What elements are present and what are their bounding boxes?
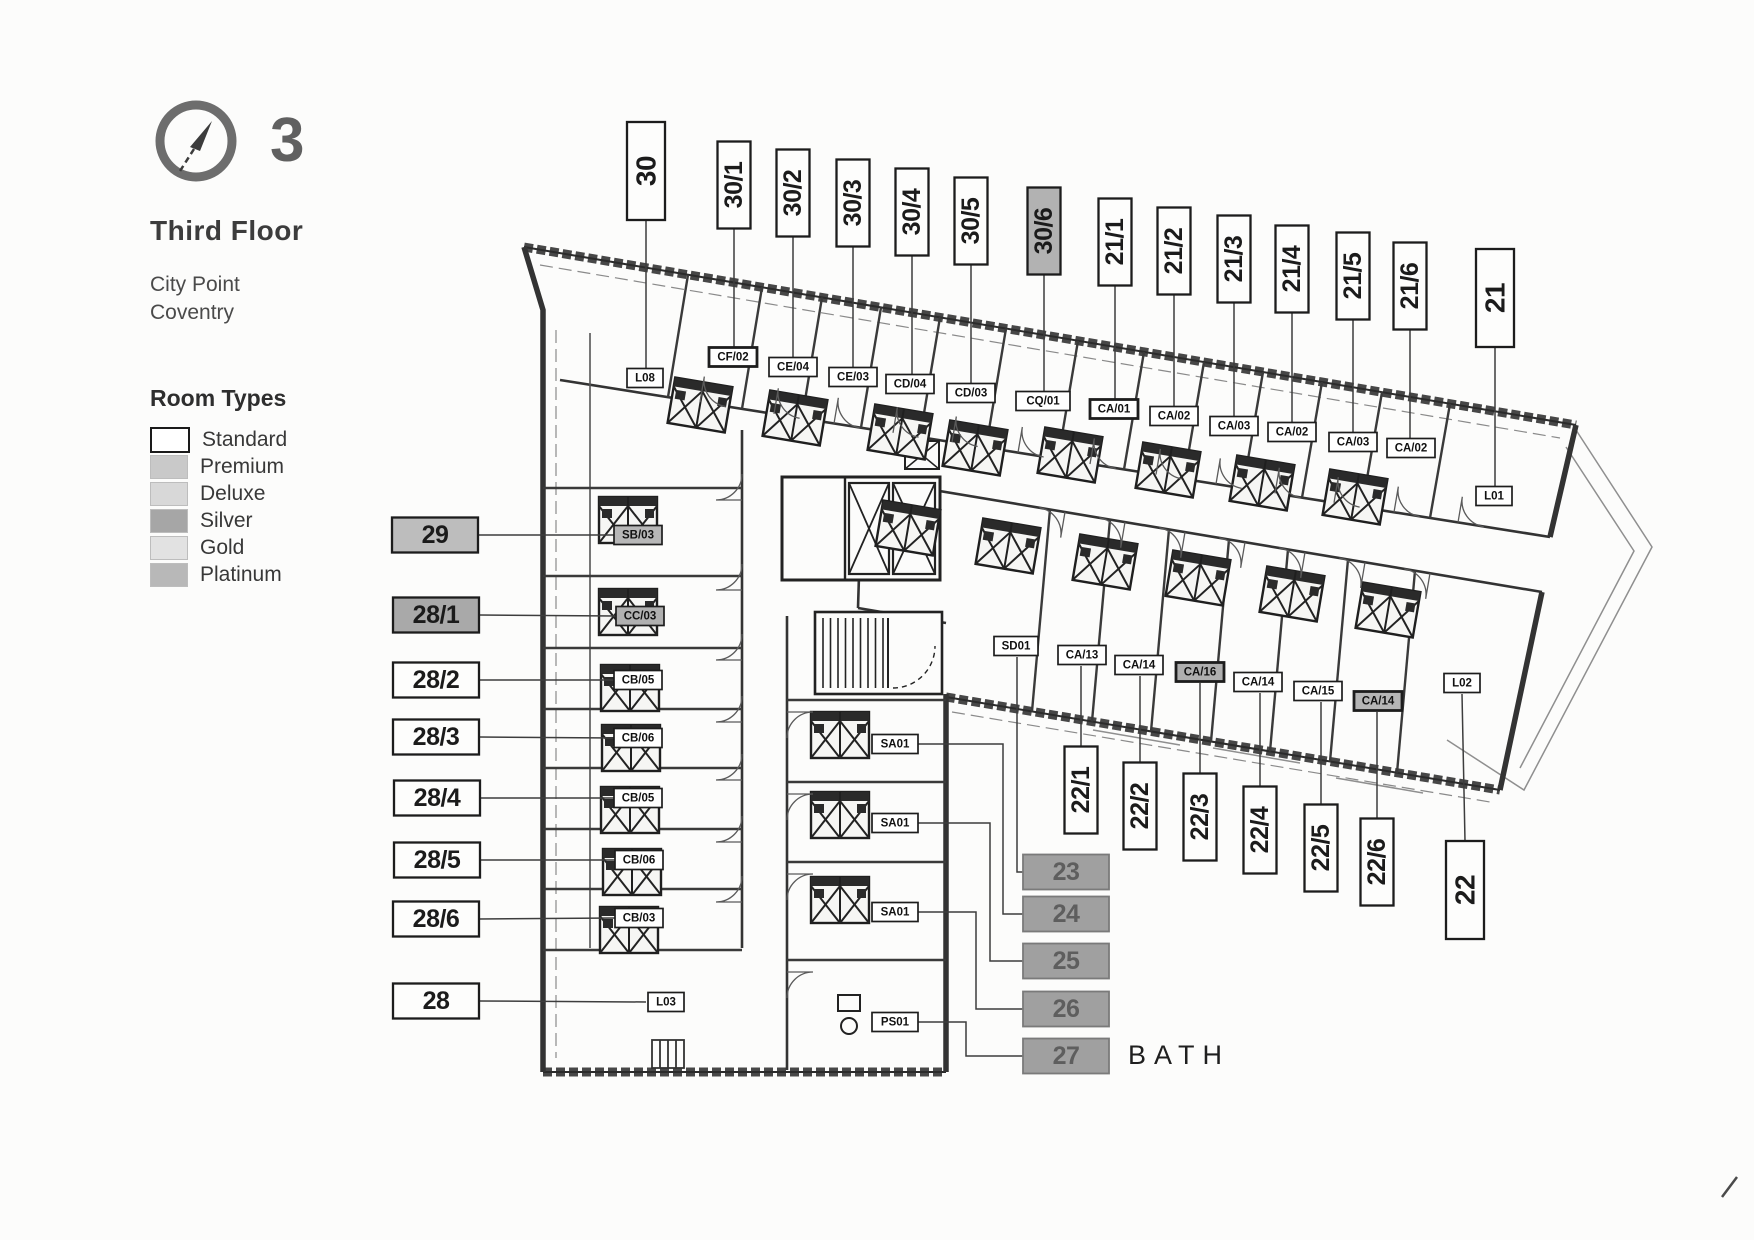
room-code-CA-13: CA/13 xyxy=(1058,646,1106,665)
svg-text:30/6: 30/6 xyxy=(1030,208,1058,255)
bed-icon xyxy=(811,712,869,758)
room-code-CA-02: CA/02 xyxy=(1387,439,1435,458)
room-code-CA-15: CA/15 xyxy=(1294,682,1342,701)
svg-text:CB/06: CB/06 xyxy=(622,733,655,745)
svg-text:28: 28 xyxy=(423,987,450,1015)
bed-icon xyxy=(811,792,869,838)
svg-text:26: 26 xyxy=(1053,995,1080,1023)
bath-label: BATH xyxy=(1128,1040,1230,1070)
svg-text:L01: L01 xyxy=(1484,491,1504,503)
svg-text:23: 23 xyxy=(1053,858,1080,886)
svg-text:CB/05: CB/05 xyxy=(622,793,655,805)
svg-text:CQ/01: CQ/01 xyxy=(1026,396,1060,408)
callout-30-3: 30/3 xyxy=(837,160,870,247)
room-code-CA-16: CA/16 xyxy=(1176,663,1224,682)
room-code-CE-04: CE/04 xyxy=(769,358,817,377)
room-code-PS01: PS01 xyxy=(872,1013,918,1032)
svg-text:L08: L08 xyxy=(635,373,655,385)
callout-30-6: 30/6 xyxy=(1028,188,1061,275)
room-code-L03: L03 xyxy=(648,993,684,1012)
room-code-CA-03: CA/03 xyxy=(1329,433,1377,452)
bed-icon xyxy=(943,420,1008,475)
svg-text:21/2: 21/2 xyxy=(1160,228,1188,275)
door-arc xyxy=(787,972,813,998)
room-code-L01: L01 xyxy=(1476,487,1512,506)
svg-text:30/3: 30/3 xyxy=(839,180,867,227)
svg-text:L02: L02 xyxy=(1452,678,1472,690)
room-code-L08: L08 xyxy=(627,369,663,388)
room-code-SA01: SA01 xyxy=(872,814,918,833)
door-arc xyxy=(787,874,813,900)
bed-icon xyxy=(1136,442,1201,497)
service-box xyxy=(652,1040,684,1068)
room-code-CB-05: CB/05 xyxy=(614,671,662,690)
svg-text:28/5: 28/5 xyxy=(414,846,461,874)
svg-text:CB/06: CB/06 xyxy=(623,855,656,867)
svg-text:SA01: SA01 xyxy=(881,907,910,919)
furniture-layer xyxy=(599,377,1420,1034)
room-code-CQ-01: CQ/01 xyxy=(1016,392,1070,411)
room-code-CA-02: CA/02 xyxy=(1150,407,1198,426)
callout-21-1: 21/1 xyxy=(1099,199,1132,286)
room-code-CB-03: CB/03 xyxy=(615,909,663,928)
room-code-CB-06: CB/06 xyxy=(614,729,662,748)
svg-text:22/4: 22/4 xyxy=(1246,806,1274,853)
bed-icon xyxy=(668,377,733,432)
bed-icon xyxy=(1323,469,1388,524)
callout-30-4: 30/4 xyxy=(896,169,929,256)
callout-23: 23 xyxy=(1023,855,1109,890)
svg-text:21: 21 xyxy=(1480,283,1511,313)
callout-21-2: 21/2 xyxy=(1158,208,1191,295)
callout-21: 21 xyxy=(1476,249,1514,347)
bed-icon xyxy=(763,390,828,445)
svg-text:22: 22 xyxy=(1450,875,1481,905)
callout-29: 29 xyxy=(392,518,478,553)
svg-text:CA/14: CA/14 xyxy=(1242,677,1275,689)
svg-text:CA/03: CA/03 xyxy=(1337,437,1370,449)
room-code-SA01: SA01 xyxy=(872,735,918,754)
callout-22-1: 22/1 xyxy=(1065,747,1098,834)
callout-26: 26 xyxy=(1023,992,1109,1027)
room-code-CC-03: CC/03 xyxy=(616,607,664,626)
svg-text:SA01: SA01 xyxy=(881,818,910,830)
callout-28-4: 28/4 xyxy=(394,781,480,816)
svg-text:22/1: 22/1 xyxy=(1067,766,1095,813)
bed-icon xyxy=(1038,427,1103,482)
svg-text:28/3: 28/3 xyxy=(413,723,460,751)
svg-text:SD01: SD01 xyxy=(1002,641,1031,653)
callout-30-5: 30/5 xyxy=(955,178,988,265)
door-arc xyxy=(787,794,813,820)
svg-text:28/6: 28/6 xyxy=(413,905,460,933)
svg-text:CA/16: CA/16 xyxy=(1184,667,1217,679)
svg-text:CA/03: CA/03 xyxy=(1218,421,1251,433)
bed-icon xyxy=(876,500,941,555)
room-code-CB-05: CB/05 xyxy=(614,789,662,808)
callout-21-4: 21/4 xyxy=(1276,226,1309,313)
room-code-SA01: SA01 xyxy=(872,903,918,922)
svg-text:28/1: 28/1 xyxy=(413,601,460,629)
room-code-CA-14: CA/14 xyxy=(1115,656,1163,675)
svg-text:CA/02: CA/02 xyxy=(1276,427,1309,439)
callout-22-6: 22/6 xyxy=(1361,819,1394,906)
bed-icon xyxy=(1073,534,1138,589)
svg-text:L03: L03 xyxy=(656,997,676,1009)
bed-icon xyxy=(868,404,933,459)
room-code-CD-04: CD/04 xyxy=(886,375,934,394)
bed-icon xyxy=(976,518,1041,573)
svg-text:28/4: 28/4 xyxy=(414,784,461,812)
door-arc xyxy=(787,712,813,738)
svg-text:CA/15: CA/15 xyxy=(1302,686,1335,698)
bed-icon xyxy=(1260,566,1325,621)
svg-text:27: 27 xyxy=(1053,1042,1080,1070)
svg-text:30/1: 30/1 xyxy=(720,161,748,208)
room-code-SD01: SD01 xyxy=(994,637,1038,656)
svg-text:30: 30 xyxy=(631,156,662,186)
callout-21-5: 21/5 xyxy=(1337,233,1370,320)
room-code-L02: L02 xyxy=(1444,674,1480,693)
svg-text:SB/03: SB/03 xyxy=(622,530,654,542)
pen-mark xyxy=(1722,1177,1737,1197)
svg-text:22/3: 22/3 xyxy=(1186,794,1214,841)
svg-text:21/3: 21/3 xyxy=(1220,236,1248,283)
svg-text:CB/05: CB/05 xyxy=(622,675,655,687)
svg-text:24: 24 xyxy=(1053,900,1080,928)
room-code-CA-14: CA/14 xyxy=(1234,673,1282,692)
room-code-CF-02: CF/02 xyxy=(709,348,757,367)
svg-text:SA01: SA01 xyxy=(881,739,910,751)
callout-28-6: 28/6 xyxy=(393,902,479,937)
callout-28-5: 28/5 xyxy=(394,843,480,878)
room-code-CA-02: CA/02 xyxy=(1268,423,1316,442)
callout-21-3: 21/3 xyxy=(1218,216,1251,303)
svg-text:25: 25 xyxy=(1053,947,1080,975)
svg-text:CD/04: CD/04 xyxy=(894,379,927,391)
room-code-CD-03: CD/03 xyxy=(947,384,995,403)
callout-30-1: 30/1 xyxy=(718,142,751,229)
callout-28-2: 28/2 xyxy=(393,663,479,698)
bed-icon xyxy=(1230,455,1295,510)
callout-28: 28 xyxy=(393,984,479,1019)
svg-text:21/4: 21/4 xyxy=(1278,245,1306,292)
svg-text:CD/03: CD/03 xyxy=(955,388,988,400)
callout-22: 22 xyxy=(1446,841,1484,939)
svg-text:PS01: PS01 xyxy=(881,1017,910,1029)
callout-24: 24 xyxy=(1023,897,1109,932)
svg-text:CC/03: CC/03 xyxy=(624,611,657,623)
callout-27: 27 xyxy=(1023,1039,1109,1074)
room-code-CA-03: CA/03 xyxy=(1210,417,1258,436)
floorplan-page: { "header": { "floor_number": "3", "floo… xyxy=(0,0,1754,1240)
bed-icon xyxy=(1166,550,1231,605)
svg-text:CA/01: CA/01 xyxy=(1098,404,1131,416)
floor-plan-drawing: L08CF/02CE/04CE/03CD/04CD/03CQ/01CA/01CA… xyxy=(0,0,1754,1240)
svg-text:30/5: 30/5 xyxy=(957,197,985,244)
svg-text:CA/14: CA/14 xyxy=(1123,660,1156,672)
svg-text:21/6: 21/6 xyxy=(1396,263,1424,310)
callout-28-3: 28/3 xyxy=(393,720,479,755)
svg-text:CA/14: CA/14 xyxy=(1362,696,1395,708)
svg-text:22/6: 22/6 xyxy=(1363,839,1391,886)
callout-25: 25 xyxy=(1023,944,1109,979)
svg-text:30/4: 30/4 xyxy=(898,188,926,235)
svg-text:CA/13: CA/13 xyxy=(1066,650,1099,662)
svg-text:CF/02: CF/02 xyxy=(717,352,748,364)
room-code-CA-14: CA/14 xyxy=(1354,692,1402,711)
room-code-SB-03: SB/03 xyxy=(614,526,662,545)
callout-28-1: 28/1 xyxy=(393,598,479,633)
svg-text:22/2: 22/2 xyxy=(1126,783,1154,830)
bed-icon xyxy=(811,877,869,923)
svg-text:29: 29 xyxy=(422,521,449,549)
svg-text:CB/03: CB/03 xyxy=(623,913,656,925)
callout-22-2: 22/2 xyxy=(1124,763,1157,850)
callout-22-5: 22/5 xyxy=(1305,805,1338,892)
svg-text:CA/02: CA/02 xyxy=(1395,443,1428,455)
svg-text:CE/03: CE/03 xyxy=(837,372,869,384)
room-code-CA-01: CA/01 xyxy=(1090,400,1138,419)
svg-text:21/5: 21/5 xyxy=(1339,252,1367,299)
callout-22-4: 22/4 xyxy=(1244,787,1277,874)
callout-22-3: 22/3 xyxy=(1184,774,1217,861)
staircase xyxy=(815,612,942,694)
room-code-CE-03: CE/03 xyxy=(829,368,877,387)
svg-text:22/5: 22/5 xyxy=(1307,824,1335,871)
callout-30: 30 xyxy=(627,122,665,220)
bed-icon xyxy=(1356,582,1421,637)
callout-21-6: 21/6 xyxy=(1394,243,1427,330)
room-code-CB-06: CB/06 xyxy=(615,851,663,870)
svg-text:30/2: 30/2 xyxy=(779,170,807,217)
callout-30-2: 30/2 xyxy=(777,150,810,237)
svg-text:21/1: 21/1 xyxy=(1101,218,1129,265)
svg-text:CE/04: CE/04 xyxy=(777,362,810,374)
svg-text:CA/02: CA/02 xyxy=(1158,411,1191,423)
svg-text:28/2: 28/2 xyxy=(413,666,460,694)
